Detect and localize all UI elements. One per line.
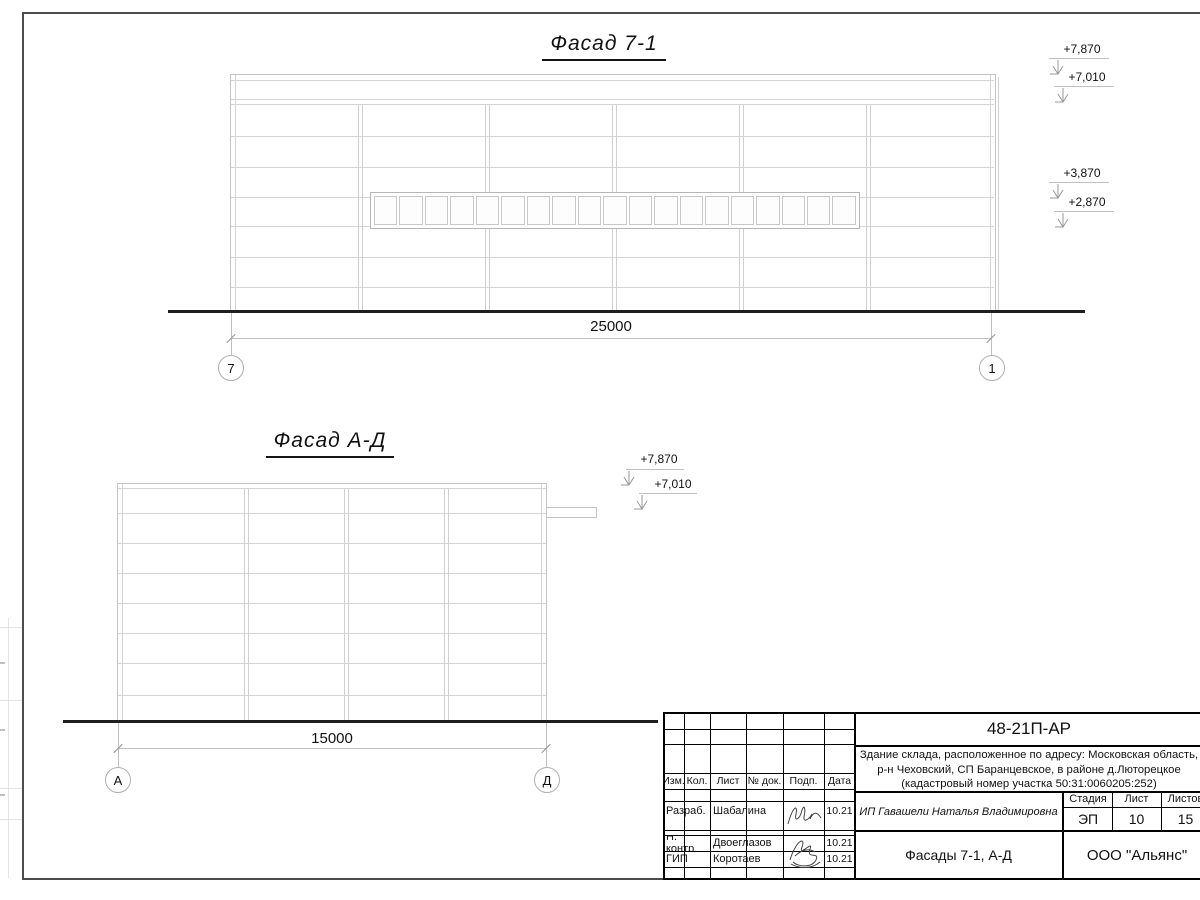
panel-line [118,513,546,514]
elevation-leader [626,469,684,470]
tb-header-list: Лист [710,773,746,789]
window-pane [527,196,550,225]
tb-address-line: р-н Чеховский, СП Баранцевское, в районе… [859,763,1199,778]
tb-name: Коротаев [710,851,783,867]
signature-gip [785,832,823,870]
column-line [344,489,349,722]
tb-client: ИП Гавашели Наталья Владимировна [855,793,1062,830]
window-pane [654,196,677,225]
window-pane [705,196,728,225]
tb-role: Н. контр. [663,835,710,851]
window-pane [374,196,397,225]
axis-label: А [114,773,123,788]
extension-line [991,313,992,355]
elevation-label: +7,010 [644,477,702,491]
ground-line [168,310,1085,313]
window-band [370,192,860,229]
tb-header-data: Дата [824,773,855,789]
window-pane [680,196,703,225]
column-line [866,105,871,312]
window-pane [552,196,575,225]
tb-sheets-value: 15 [1161,807,1200,830]
tb-header-podp: Подп. [783,773,824,789]
window-pane [425,196,448,225]
tb-sheets-label: Листов [1161,791,1200,807]
drawing-sheet: Фасад 7-1 [0,0,1200,900]
axis-label: Д [543,773,552,788]
ground-line [63,720,658,723]
panel-line [118,573,546,574]
elevation-label: +2,870 [1058,195,1116,209]
window-pane [501,196,524,225]
window-pane [399,196,422,225]
window-pane [578,196,601,225]
panel-line [118,663,546,664]
window-pane [603,196,626,225]
wall-edge-line [990,75,991,312]
tb-date: 10.21 [824,835,855,851]
elevation-leader [1049,58,1109,59]
panel-line [118,603,546,604]
elevation-arrow-icon [621,471,637,489]
tb-date: 10.21 [824,851,855,867]
facade-a-d-title: Фасад А-Д [266,429,394,458]
tb-header-ndok: № док. [746,773,783,789]
axis-label: 1 [988,361,995,376]
tb-line [783,712,784,880]
column-line [358,105,363,312]
axis-label: 7 [227,361,234,376]
axis-bubble-a: А [105,767,131,793]
tb-name: Двоеглазов [710,835,783,851]
dimension-line [118,748,547,749]
elevation-leader [1054,211,1114,212]
tb-line [663,801,855,802]
parapet-line [231,80,994,81]
tb-doc-number: 48-21П-АР [855,714,1200,744]
elevation-arrow-icon [1055,88,1071,106]
tb-line [663,744,855,745]
column-line [444,489,449,722]
tb-role: ГИП [663,851,710,867]
axis-bubble-7: 7 [218,355,244,381]
panel-line [118,633,546,634]
panel-line [118,543,546,544]
tb-line [663,729,855,730]
tb-header-kol: Кол. [684,773,710,789]
tb-stage-value: ЭП [1064,807,1112,830]
window-pane [832,196,855,225]
tb-address-line: Здание склада, расположенное по адресу: … [859,748,1199,763]
parapet-line [118,488,546,489]
tb-line [663,789,855,790]
elevation-leader [639,493,697,494]
elevation-arrow-icon [634,495,650,513]
tb-address-line: (кадастровый номер участка 50:31:0060205… [859,777,1199,792]
window-pane [629,196,652,225]
tb-line [855,745,1200,747]
tb-sheet-value: 10 [1112,807,1161,830]
window-pane [731,196,754,225]
tb-role: Разраб. [663,803,710,819]
dimension-line [231,338,992,339]
tb-sheet-title: Фасады 7-1, А-Д [855,832,1062,878]
tb-stage-label: Стадия [1064,791,1112,807]
window-band-panes [374,196,856,225]
tb-name: Шабалина [710,803,783,819]
column-line [244,489,249,722]
window-pane [450,196,473,225]
tb-line [663,830,855,831]
elevation-arrow-icon [1055,213,1071,231]
tb-header-izm: Изм. [663,773,684,789]
downpipe-line [998,77,999,312]
dimension-value: 25000 [541,318,681,335]
elevation-leader [1049,182,1109,183]
tb-company: ООО "Альянс" [1064,832,1200,878]
elevation-label: +7,010 [1058,70,1116,84]
elevation-label: +7,870 [630,452,688,466]
tb-sheet-label: Лист [1112,791,1161,807]
window-pane [476,196,499,225]
elevation-label: +3,870 [1053,166,1111,180]
signature-shabalina [785,802,823,830]
elevation-leader [1054,86,1114,87]
wall-edge-line [235,75,236,312]
extension-line [231,313,232,355]
window-pane [782,196,805,225]
panel-line [118,695,546,696]
tb-line [663,867,855,868]
window-pane [756,196,779,225]
gutter-stub [546,507,597,518]
frame-left-line [22,12,24,880]
elevation-label: +7,870 [1053,42,1111,56]
axis-bubble-d: Д [534,767,560,793]
axis-bubble-1: 1 [979,355,1005,381]
window-pane [807,196,830,225]
frame-top-line [23,12,1200,14]
tb-date: 10.21 [824,803,855,819]
title-block: Изм. Кол. Лист № док. Подп. Дата Разраб.… [663,712,1200,880]
tb-address: Здание склада, расположенное по адресу: … [859,748,1199,790]
dimension-value: 15000 [262,730,402,747]
parapet-line [231,99,994,100]
facade-7-1-title: Фасад 7-1 [542,32,666,61]
